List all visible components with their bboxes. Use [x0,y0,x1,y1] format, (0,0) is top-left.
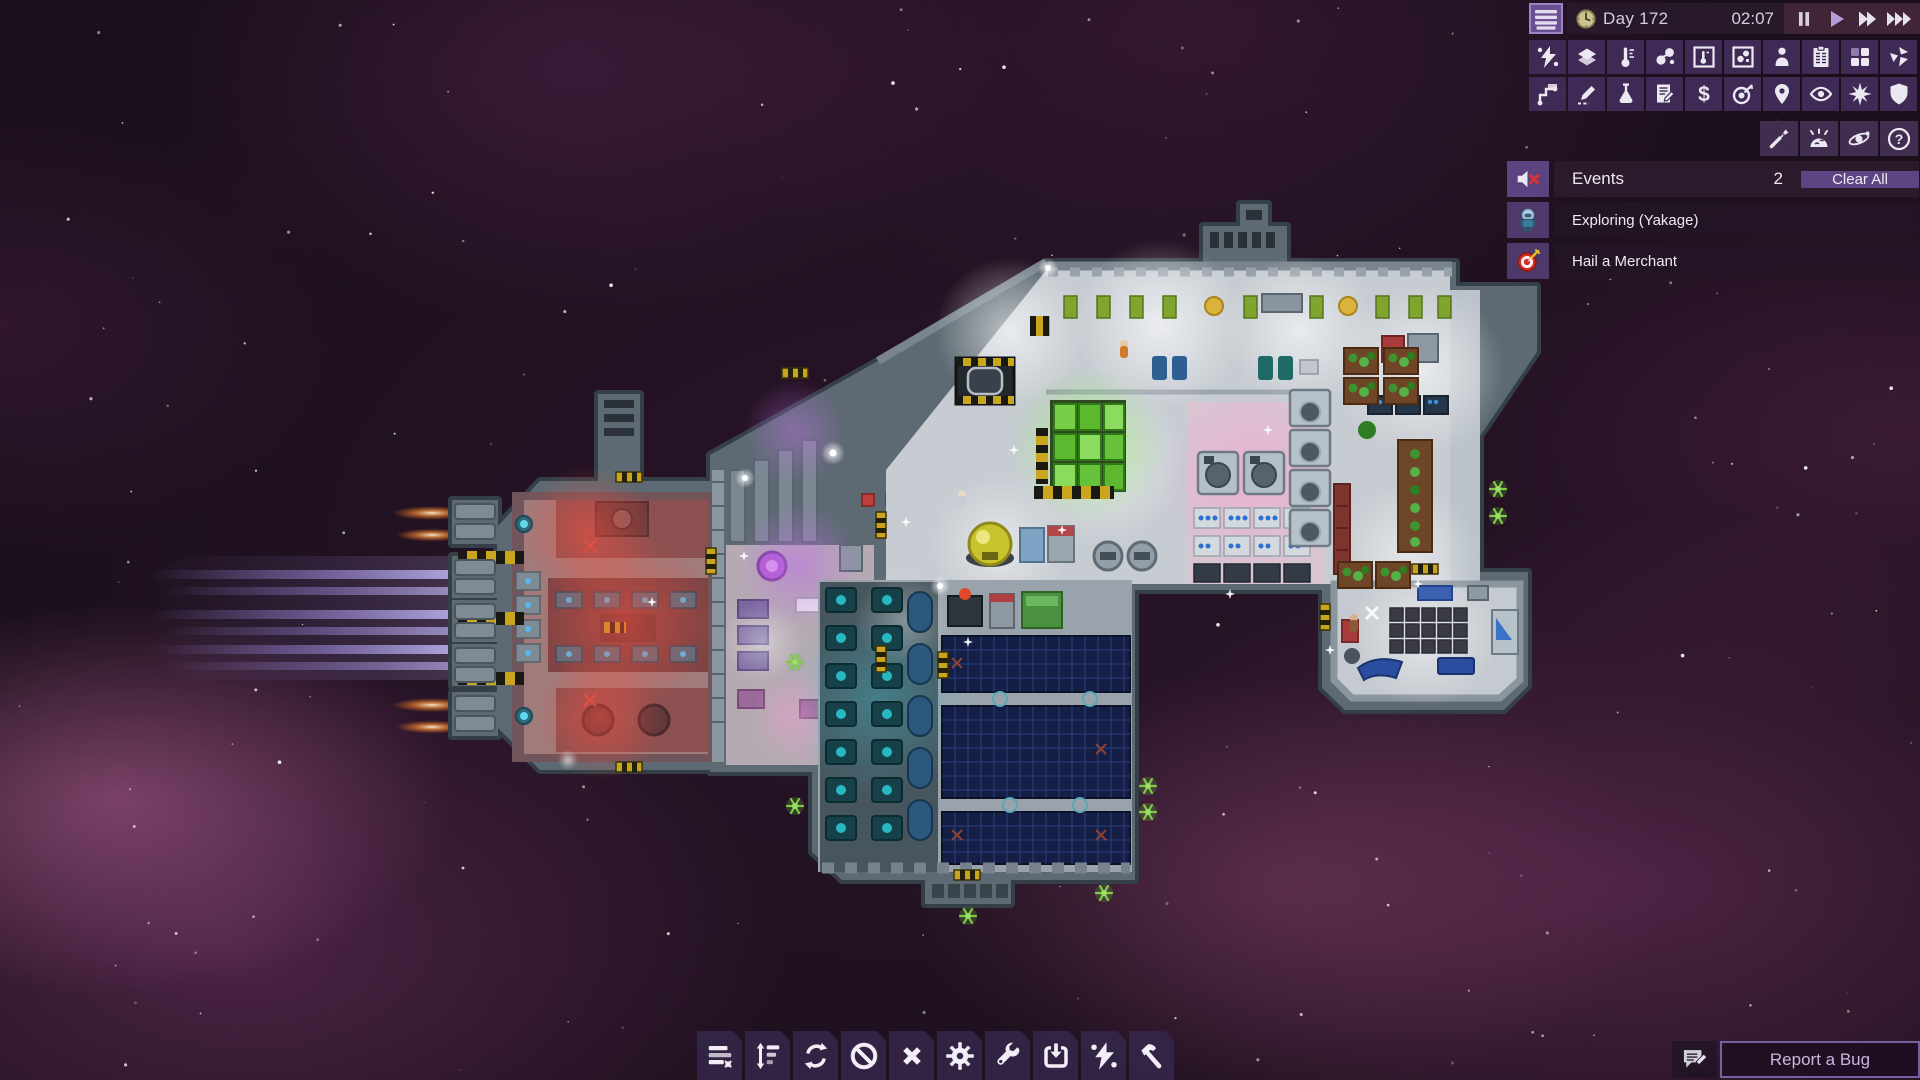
combat-icon [1848,82,1872,106]
overlay-temperature-view-button[interactable] [1685,40,1722,74]
overlay-logistics-button[interactable] [1529,77,1566,111]
overlay-shield-button[interactable] [1880,77,1917,111]
section-solar-array[interactable] [783,570,1132,898]
pause-button[interactable] [1788,5,1820,33]
events-panel: Events 2 Clear All Exploring (Yakage) [1507,161,1919,279]
settings-button[interactable] [937,1031,982,1080]
overlay-temperature-button[interactable] [1607,40,1644,74]
navigation-icon [1770,82,1794,106]
settings-icon [945,1041,975,1071]
missions-icon [1731,82,1755,106]
crew-icon [1770,45,1794,69]
meteor-icon [1807,127,1831,151]
overlay-view-button[interactable] [1802,77,1839,111]
event-label: Exploring (Yakage) [1554,212,1698,229]
overlay-navigation-button[interactable] [1763,77,1800,111]
repair-icon [993,1041,1023,1071]
overlay-gas-view-button[interactable] [1724,40,1761,74]
quick-toolbar: ? [1760,121,1918,156]
research-icon [1614,82,1638,106]
muted-speaker-icon [1515,166,1541,192]
speed-controls [1784,3,1920,34]
report-bug-button[interactable]: Report a Bug [1720,1041,1920,1078]
overlay-crew-button[interactable] [1763,40,1800,74]
svg-text:?: ? [1895,131,1904,147]
plan-icon [1575,82,1599,106]
chat-pencil-icon [1681,1047,1709,1073]
install-button[interactable] [1033,1031,1078,1080]
overlay-gas-button[interactable] [1646,40,1683,74]
deconstruct-button[interactable] [889,1031,934,1080]
orbit-icon [1847,127,1871,151]
temperature-view-icon [1692,45,1716,69]
contracts-icon [1653,82,1677,106]
event-icon-cell [1507,202,1549,238]
quick-orbit-button[interactable] [1840,121,1878,156]
events-title: Events [1554,169,1624,189]
clock-icon [1575,8,1597,30]
airlock[interactable] [956,358,1014,404]
priority-button[interactable] [745,1031,790,1080]
tiles-icon [1575,45,1599,69]
repair-button[interactable] [985,1031,1030,1080]
overlay-trade-button[interactable]: $ [1685,77,1722,111]
gas-view-icon [1731,45,1755,69]
rotate-button[interactable] [793,1031,838,1080]
time-of-day: 02:07 [1731,9,1774,29]
install-icon [1041,1041,1071,1071]
event-icon-cell [1507,243,1549,279]
overlay-missions-button[interactable] [1724,77,1761,111]
trade-icon: $ [1692,82,1716,106]
event-label: Hail a Merchant [1554,253,1677,270]
manage-list-icon [705,1041,735,1071]
modules-icon [1848,45,1872,69]
tasks-icon [1809,45,1833,69]
overlay-research-button[interactable] [1607,77,1644,111]
explorer-crew-icon [1514,206,1542,234]
power-icon [1536,45,1560,69]
menu-button[interactable] [1529,3,1563,34]
pause-icon [1793,8,1815,30]
shield-icon [1887,82,1911,106]
events-count: 2 [1774,169,1801,189]
quick-meteor-button[interactable] [1800,121,1838,156]
overlay-combat-button[interactable] [1841,77,1878,111]
day-counter: Day 172 [1603,9,1668,29]
overlay-modules-button[interactable] [1841,40,1878,74]
overlay-toolbar: $ [1529,40,1920,111]
solar-panels[interactable] [942,636,1130,864]
hydroponics-farm[interactable] [1010,367,1166,523]
game-viewport: Day 172 02:07 [0,0,1920,1080]
power-tool-button[interactable] [1081,1031,1126,1080]
power-tool-icon [1089,1041,1119,1071]
build-button[interactable] [1129,1031,1174,1080]
overlay-contracts-button[interactable] [1646,77,1683,111]
events-header: Events 2 Clear All [1554,161,1919,197]
fast-forward-button[interactable] [1852,5,1884,33]
svg-text:$: $ [1698,83,1710,106]
report-bug-area: Report a Bug [1672,1041,1920,1078]
overlay-damage-button[interactable] [1880,40,1917,74]
play-button[interactable] [1820,5,1852,33]
dart-icon [1767,127,1791,151]
overlay-plan-button[interactable] [1568,77,1605,111]
clear-all-button[interactable]: Clear All [1801,171,1919,188]
quick-help-button[interactable]: ? [1880,121,1918,156]
event-bar[interactable]: Exploring (Yakage) [1554,202,1919,238]
build-toolbar [697,1031,1174,1080]
fast-forward-icon [1855,7,1881,31]
manage-list-button[interactable] [697,1031,742,1080]
target-dart-icon [1514,247,1542,275]
gas-icon [1653,45,1677,69]
forbid-icon [849,1041,879,1071]
view-icon [1809,82,1833,106]
bug-chat-button[interactable] [1672,1041,1717,1078]
event-row-exploring[interactable]: Exploring (Yakage) [1507,202,1919,238]
fastest-icon [1885,7,1915,31]
overlay-tasks-button[interactable] [1802,40,1839,74]
fastest-button[interactable] [1884,5,1916,33]
logistics-icon [1536,82,1560,106]
deconstruct-icon [897,1041,927,1071]
hamburger-icon [1534,7,1558,31]
priority-icon [753,1041,783,1071]
event-bar[interactable]: Hail a Merchant [1554,243,1919,279]
rotate-icon [801,1041,831,1071]
mute-events-button[interactable] [1507,161,1549,197]
build-icon [1137,1041,1167,1071]
overlay-tiles-button[interactable] [1568,40,1605,74]
overlay-power-button[interactable] [1529,40,1566,74]
play-icon [1824,7,1848,31]
damage-icon [1887,45,1911,69]
engine-trails [140,556,502,680]
forbid-button[interactable] [841,1031,886,1080]
quick-dart-button[interactable] [1760,121,1798,156]
event-row-merchant[interactable]: Hail a Merchant [1507,243,1919,279]
time-bar: Day 172 02:07 [1567,3,1920,34]
temperature-icon [1614,45,1638,69]
help-icon: ? [1887,127,1911,151]
